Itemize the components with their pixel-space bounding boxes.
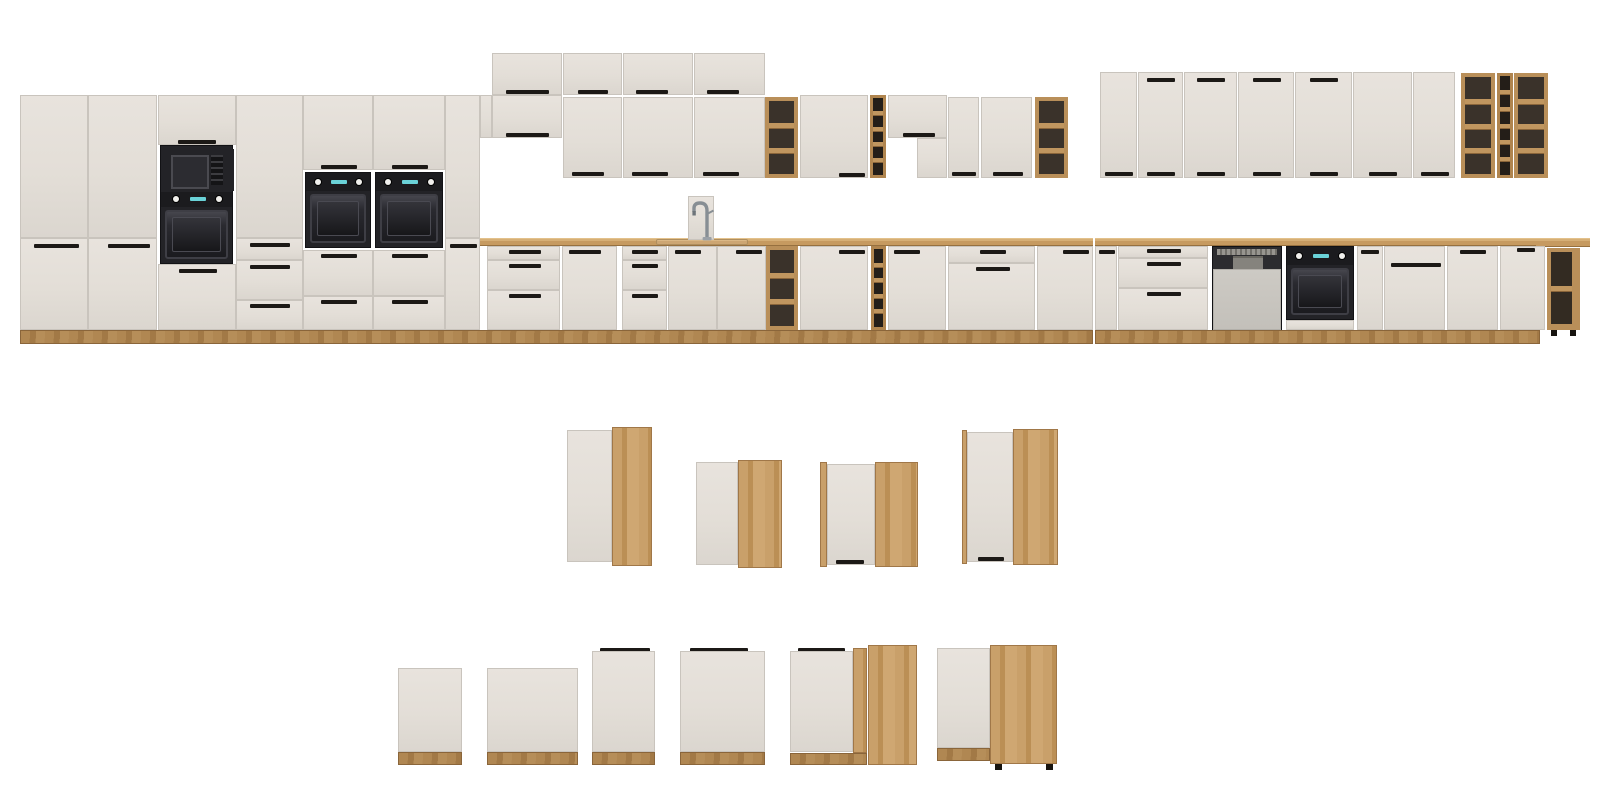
wall-wine-rack: [870, 95, 886, 178]
door-handle: [572, 172, 604, 176]
door-handle: [632, 172, 668, 176]
oven-window-inner: [387, 201, 431, 236]
door-handle: [993, 172, 1023, 176]
base-front: [1286, 320, 1354, 330]
kitchen-module-lineup: [0, 0, 1600, 807]
door-handle: [978, 557, 1004, 561]
door-handle: [736, 250, 762, 254]
front-plinth: [398, 752, 462, 765]
shelf-board: [873, 142, 883, 147]
door-handle: [1099, 250, 1115, 254]
base-door: [1037, 246, 1093, 330]
wall-topper-door: [563, 53, 622, 95]
shelf-board: [1500, 90, 1510, 95]
tall-door: [373, 95, 445, 170]
tall-door: [88, 95, 157, 238]
adjustable-foot: [1046, 764, 1053, 770]
tall-door: [445, 95, 480, 238]
oven-knob: [356, 179, 362, 185]
adjustable-foot: [995, 764, 1002, 770]
built-in-oven: [1286, 246, 1354, 320]
dishwasher-front-panel: [1213, 269, 1281, 330]
drawer-front: [1118, 258, 1208, 288]
drawer-front: [303, 296, 373, 330]
shelf-board: [1500, 157, 1510, 162]
built-in-oven: [375, 172, 443, 248]
drawer-front: [948, 246, 1035, 263]
shelf-board: [770, 299, 794, 305]
door-handle: [321, 300, 357, 304]
base-door: [1500, 246, 1545, 330]
drawer-front: [622, 260, 667, 290]
appliance-front-panel: [592, 651, 655, 752]
front-plinth: [790, 753, 867, 765]
drawer-front: [303, 250, 373, 296]
door-handle: [1253, 172, 1281, 176]
corner-base-wood-panel: [990, 645, 1057, 764]
shelf-board: [769, 123, 794, 129]
oven-knob: [428, 179, 434, 185]
door-handle: [178, 140, 216, 144]
door-handle: [321, 254, 357, 258]
drawer-front: [373, 296, 445, 330]
appliance-front-panel: [1384, 246, 1445, 330]
oven-display: [331, 180, 347, 184]
base-wine-rack: [871, 246, 886, 330]
corner-wall-wood-strip: [820, 462, 827, 567]
door-handle: [703, 172, 739, 176]
oven-display: [1313, 254, 1329, 258]
door-handle: [250, 304, 290, 308]
door-handle: [839, 173, 865, 177]
adjustable-foot: [1570, 330, 1576, 336]
base-front: [948, 263, 1035, 330]
wall-door: [623, 97, 693, 178]
base-door: [1357, 246, 1383, 330]
corner-base-door: [790, 651, 853, 752]
shelf-board: [1551, 286, 1572, 292]
dishwasher-cutlery-tray: [1217, 249, 1277, 255]
door-handle: [952, 172, 976, 176]
door-handle: [1105, 172, 1133, 176]
wall-open-shelf: [765, 97, 798, 178]
oven-window-inner: [172, 217, 221, 252]
drawer-front: [373, 250, 445, 296]
door-handle: [632, 250, 658, 254]
drawer-front: [236, 260, 303, 300]
shelf-board: [1039, 123, 1064, 129]
oven-window: [310, 194, 366, 243]
door-handle: [894, 250, 920, 254]
drawer-front: [622, 246, 667, 260]
microwave-buttons: [211, 155, 223, 185]
wall-topper-door: [492, 53, 562, 95]
sink-base-door: [717, 246, 766, 330]
wall-door: [1353, 72, 1412, 178]
oven-knob: [1339, 253, 1345, 259]
wall-door: [694, 97, 765, 178]
base-open-shelf: [766, 246, 798, 330]
tall-door: [445, 238, 480, 330]
oven-display: [190, 197, 206, 201]
door-handle: [707, 90, 739, 94]
door-handle: [632, 264, 658, 268]
tall-door: [20, 238, 88, 330]
shelf-board: [1518, 148, 1544, 154]
shelf-board: [874, 309, 883, 314]
oven-window: [165, 210, 228, 259]
door-handle: [1391, 263, 1441, 267]
wall-door: [800, 95, 868, 178]
door-handle: [1147, 292, 1181, 296]
base-door: [888, 246, 946, 330]
microwave-oven-tower: [160, 145, 233, 264]
corner-wall-door: [696, 462, 738, 565]
base-door: [1447, 246, 1498, 330]
wall-door: [948, 97, 979, 178]
appliance-front-panel: [398, 668, 462, 752]
door-handle: [1460, 250, 1486, 254]
front-plinth: [487, 752, 578, 765]
hood-cabinet-door: [888, 95, 947, 138]
shelf-board: [874, 294, 883, 299]
door-handle: [1147, 78, 1175, 82]
corner-base-wood-strip: [853, 648, 867, 753]
shelf-board: [770, 273, 794, 279]
plinth: [1095, 330, 1540, 344]
corner-wall-door: [827, 464, 875, 565]
door-handle: [836, 560, 864, 564]
door-handle: [392, 300, 428, 304]
wall-topper-door: [694, 53, 765, 95]
plinth: [20, 330, 1093, 344]
built-in-oven: [305, 172, 371, 248]
door-handle: [392, 254, 428, 258]
door-handle: [509, 250, 541, 254]
base-door: [562, 246, 617, 330]
shelf-board: [873, 158, 883, 163]
drawer-front: [1118, 288, 1208, 330]
tall-door: [20, 95, 88, 238]
door-handle: [509, 294, 541, 298]
door-handle: [1147, 249, 1181, 253]
dishwasher-dispenser: [1233, 256, 1263, 270]
door-handle: [179, 269, 217, 273]
drawer-front: [158, 264, 236, 330]
corner-base-door: [937, 648, 990, 748]
appliance-front-panel: [487, 668, 578, 752]
countertop: [1095, 238, 1540, 246]
door-handle: [1253, 78, 1281, 82]
base-door: [1095, 246, 1117, 330]
door-handle: [1063, 250, 1089, 254]
door-handle: [1310, 172, 1338, 176]
corner-wall-door: [567, 430, 612, 562]
door-handle: [1361, 250, 1379, 254]
wall-door: [1184, 72, 1237, 178]
drawer-front: [487, 290, 560, 330]
countertop: [480, 238, 1093, 246]
door-handle: [1197, 78, 1225, 82]
tall-side-panel: [480, 95, 492, 138]
door-handle: [636, 90, 668, 94]
adjustable-foot: [1551, 330, 1557, 336]
door-handle: [506, 133, 549, 137]
door-handle: [1517, 248, 1535, 252]
door-handle: [506, 90, 549, 94]
corner-wall-wood-panel: [612, 427, 652, 566]
oven-knob: [216, 196, 222, 202]
oven-knob: [315, 179, 321, 185]
door-handle: [1369, 172, 1397, 176]
shelf-board: [1039, 148, 1064, 154]
wall-door: [1138, 72, 1183, 178]
corner-wall-wood-panel: [738, 460, 782, 568]
door-handle: [569, 250, 601, 254]
tall-door: [88, 238, 157, 330]
shelf-board: [1465, 124, 1491, 130]
door-handle: [1310, 78, 1338, 82]
wall-door: [981, 97, 1032, 178]
oven-display: [402, 180, 418, 184]
corner-base-wood-panel: [868, 645, 917, 765]
door-handle: [980, 250, 1006, 254]
door-handle: [450, 244, 477, 248]
shelf-board: [1518, 124, 1544, 130]
shelf-board: [1465, 148, 1491, 154]
wall-topper-door: [623, 53, 693, 95]
door-handle: [632, 294, 658, 298]
front-plinth: [937, 748, 990, 761]
door-handle: [392, 165, 428, 169]
corner-wall-wood-panel: [875, 462, 918, 567]
oven-knob: [1296, 253, 1302, 259]
door-handle: [903, 133, 935, 137]
oven-knob: [385, 179, 391, 185]
shelf-board: [873, 111, 883, 116]
wall-short-door: [492, 95, 562, 138]
wall-door: [1295, 72, 1352, 178]
front-plinth: [680, 752, 765, 765]
wall-door: [1100, 72, 1137, 178]
shelf-board: [1500, 140, 1510, 145]
microwave: [161, 149, 234, 191]
door-handle: [1197, 172, 1225, 176]
wall-open-shelf: [1461, 73, 1495, 178]
door-handle: [1147, 262, 1181, 266]
tall-door: [158, 95, 236, 145]
door-handle: [839, 250, 865, 254]
wall-door: [1238, 72, 1294, 178]
tall-door: [236, 95, 303, 238]
door-handle: [250, 265, 290, 269]
shelf-board: [874, 263, 883, 268]
shelf-board: [769, 148, 794, 154]
drawer-front: [622, 290, 667, 330]
door-handle: [250, 243, 290, 247]
microwave-screen: [171, 155, 209, 189]
oven-window-inner: [317, 201, 359, 236]
door-handle: [34, 244, 79, 248]
shelf-board: [873, 127, 883, 132]
shelf-board: [1518, 99, 1544, 105]
corner-wall-door: [967, 432, 1013, 562]
drawer-front: [236, 238, 303, 260]
drawer-front: [1118, 246, 1208, 258]
appliance-front-panel: [680, 651, 765, 752]
dishwasher: [1212, 246, 1282, 331]
sink-base-door: [668, 246, 717, 330]
door-handle: [509, 264, 541, 268]
drawer-front: [487, 246, 560, 260]
drawer-front: [236, 300, 303, 330]
shelf-board: [1500, 124, 1510, 129]
oven-window: [380, 194, 438, 243]
door-handle: [1147, 172, 1175, 176]
wall-open-shelf: [1035, 97, 1068, 178]
door-handle: [1421, 172, 1449, 176]
door-handle: [675, 250, 701, 254]
wall-door: [1413, 72, 1455, 178]
oven-window: [1291, 268, 1349, 315]
front-plinth: [592, 752, 655, 765]
base-door: [800, 246, 868, 330]
door-handle: [578, 90, 608, 94]
oven-knob: [173, 196, 179, 202]
oven-window-inner: [1298, 275, 1342, 308]
tall-door: [303, 95, 373, 170]
wall-door: [563, 97, 622, 178]
faucet: [688, 196, 714, 240]
shelf-board: [1465, 99, 1491, 105]
drawer-front: [487, 260, 560, 290]
corner-open-shelf: [1547, 248, 1580, 330]
wall-wine-rack: [1497, 73, 1513, 178]
corner-wall-wood-panel: [1013, 429, 1058, 565]
wall-open-shelf: [1514, 73, 1548, 178]
hood-cabinet-side: [917, 138, 947, 178]
door-handle: [108, 244, 150, 248]
shelf-board: [874, 278, 883, 283]
door-handle: [976, 267, 1010, 271]
door-handle: [321, 165, 357, 169]
shelf-board: [1500, 107, 1510, 112]
faucet-icon: [689, 197, 715, 241]
